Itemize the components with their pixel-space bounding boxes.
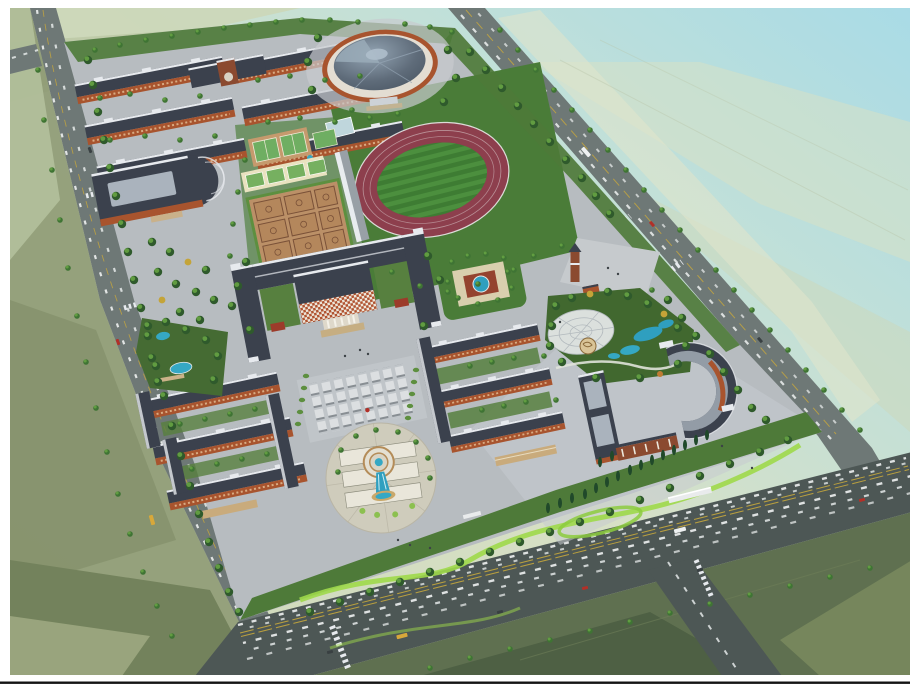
bottom-rule-line xyxy=(0,682,910,684)
campus-aerial-rendering xyxy=(0,0,910,687)
rendering-canvas xyxy=(0,0,910,687)
